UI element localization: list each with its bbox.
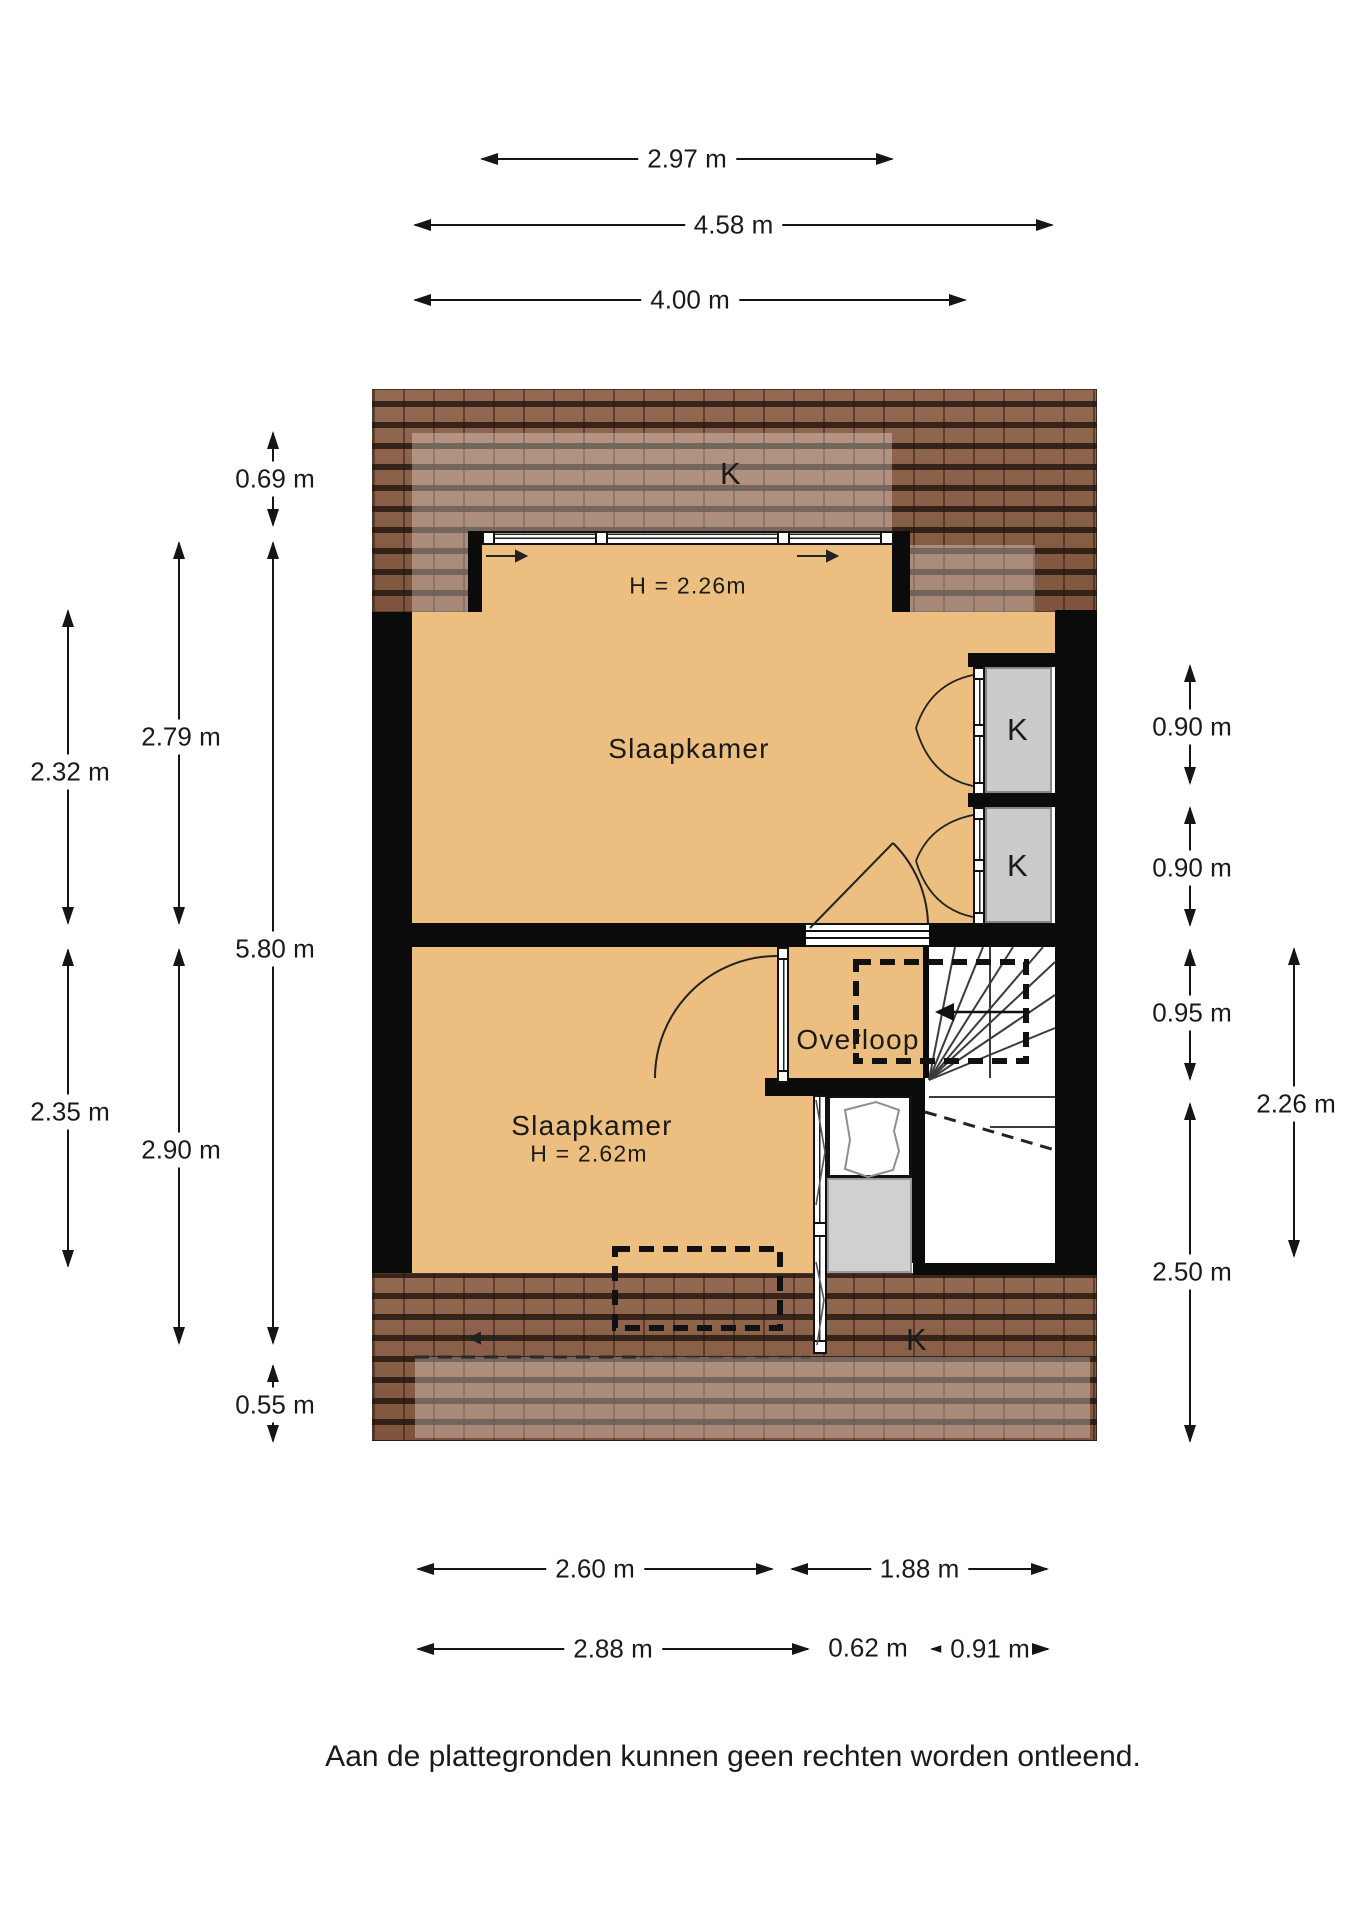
dim-v-2.32-m: 2.32 m: [67, 611, 69, 923]
casement-arc: [916, 728, 973, 786]
dim-v-0.90-m: 0.90 m: [1189, 808, 1191, 925]
room2-label: Slaapkamer: [511, 1110, 672, 1142]
dim-label: 2.90 m: [134, 1133, 228, 1168]
staircase-treads: [929, 947, 1055, 1127]
dim-h-2.60-m: 2.60 m: [418, 1568, 772, 1570]
dim-text-0.62-m: 0.62 m: [828, 1633, 908, 1664]
dim-v-2.35-m: 2.35 m: [67, 950, 69, 1266]
roof-top-label: K: [720, 456, 742, 492]
dim-label: 0.55 m: [228, 1388, 322, 1423]
dim-label: 0.95 m: [1145, 996, 1239, 1031]
dim-label: 0.91 m: [941, 1633, 1039, 1666]
dim-h-1.88-m: 1.88 m: [792, 1568, 1047, 1570]
stair-headroom-line: [925, 1112, 1055, 1150]
dim-h-4.00-m: 4.00 m: [415, 299, 965, 301]
roof-window-1-label: K: [1007, 712, 1029, 748]
door-arc-bedroom1: [893, 843, 928, 923]
open-window-zigzag: [816, 1100, 825, 1345]
dim-label: 2.79 m: [134, 720, 228, 755]
dim-label: 4.58 m: [685, 209, 783, 242]
dim-v-0.69-m: 0.69 m: [272, 433, 274, 525]
dim-v-0.90-m: 0.90 m: [1189, 666, 1191, 783]
dim-label: 2.35 m: [23, 1095, 117, 1130]
dim-label: 2.60 m: [546, 1553, 644, 1586]
dim-v-0.95-m: 0.95 m: [1189, 950, 1191, 1079]
casement-arc: [916, 815, 973, 861]
door-arc-landing: [655, 956, 777, 1078]
window-slide-arrow: [470, 551, 837, 1343]
casement-arc: [916, 675, 973, 728]
roof-bottom-label: K: [906, 1322, 928, 1358]
room2-height-label: H = 2.62m: [530, 1141, 648, 1168]
void-symbol: [845, 1102, 899, 1177]
roof-window-2-label: K: [1007, 848, 1029, 884]
dim-h-2.88-m: 2.88 m: [418, 1648, 808, 1650]
door-arc-bedroom1: [810, 843, 893, 928]
dim-h-0.91-m: 0.91 m: [932, 1648, 1048, 1650]
dim-label: 0.90 m: [1145, 710, 1239, 745]
dim-v-2.79-m: 2.79 m: [178, 543, 180, 923]
dim-label: 2.88 m: [564, 1633, 662, 1666]
dim-label: 4.00 m: [641, 284, 739, 317]
dim-h-4.58-m: 4.58 m: [415, 224, 1052, 226]
dim-label: 2.32 m: [23, 755, 117, 790]
dim-label: 0.69 m: [228, 462, 322, 497]
dim-v-2.90-m: 2.90 m: [178, 950, 180, 1343]
dim-v-2.26-m: 2.26 m: [1293, 949, 1295, 1256]
dim-label: 5.80 m: [228, 932, 322, 967]
room1-height-label: H = 2.26m: [629, 573, 747, 600]
dim-v-5.80-m: 5.80 m: [272, 543, 274, 1343]
landing-label: Overloop: [796, 1024, 919, 1056]
dim-label: 2.26 m: [1249, 1087, 1343, 1122]
dim-label: 2.97 m: [638, 143, 736, 176]
dim-h-2.97-m: 2.97 m: [482, 158, 892, 160]
dim-label: 1.88 m: [871, 1553, 969, 1586]
dim-v-0.55-m: 0.55 m: [272, 1366, 274, 1441]
disclaimer-text: Aan de plattegronden kunnen geen rechten…: [325, 1740, 1141, 1774]
dim-label: 2.50 m: [1145, 1255, 1239, 1290]
headroom-dashed-rect-bedroom2: [615, 1249, 780, 1328]
room1-label: Slaapkamer: [608, 733, 769, 765]
dim-v-2.50-m: 2.50 m: [1189, 1104, 1191, 1441]
floorplan-page: SlaapkamerH = 2.26mSlaapkamerH = 2.62mOv…: [0, 0, 1358, 1920]
casement-arc: [916, 861, 973, 917]
dim-label: 0.90 m: [1145, 851, 1239, 886]
